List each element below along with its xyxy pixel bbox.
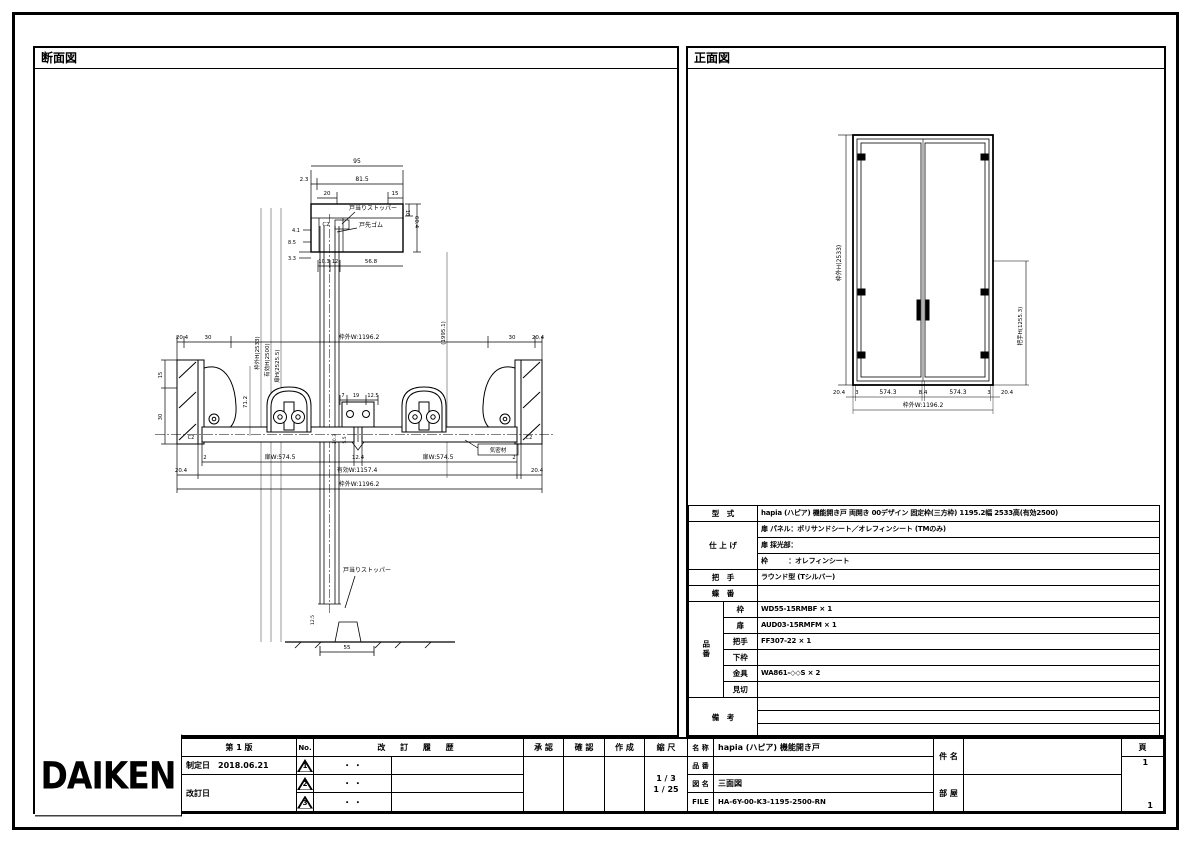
dim-label: 12.5 [310,615,316,625]
dim-label: 10.3 [318,259,329,265]
spec-part-value [758,650,1160,666]
front-view-panel: 正面図 [686,46,1166,737]
revision-desc [392,775,524,793]
dim-label: 20.4 [175,468,188,474]
dim-label: 2.3 [300,177,309,183]
spec-row-finish: 扉 採光部： [689,538,1160,554]
dim-label: 2 [512,455,515,461]
dim-label: 枠外W:1196.2 [903,401,944,409]
spec-part-key: 枠 [723,602,758,618]
dim-label: C2 [322,222,329,228]
daiken-logo: DAIKEN [35,735,182,817]
spec-row-hinge: 蝶 番 [689,586,1160,602]
door-elevation [853,135,993,385]
dim-label: 20.4 [833,390,846,396]
spec-part-key: 把手 [723,634,758,650]
notes-line [758,698,1159,711]
enacted-date-row: 制定日 2018.06.21 [182,757,297,775]
spec-model-value: hapia (ハピア) 機能開き戸 両開き 00デザイン 固定枠(三方枠) 11… [758,506,1160,522]
spec-label: 仕 上 げ [689,522,758,570]
create-cell [605,757,645,812]
spec-handle-value: ラウンド型 (Tシルバー) [758,570,1160,586]
specification-table: 型 式 hapia (ハピア) 機能開き戸 両開き 00デザイン 固定枠(三方枠… [688,505,1160,737]
edition-label: 第 1 版 [182,739,297,757]
pn-value [714,757,934,775]
dim-label: 19 [353,393,359,399]
dim-label: 7 [341,393,344,399]
dim-label: 71.2 [243,396,249,408]
spec-row-finish: 仕 上 げ 扉 パネル：ポリサンドシート／オレフィンシート (TMのみ) [689,522,1160,538]
dim-label: 10 [404,210,410,216]
history-header: 改 訂 履 歴 [314,739,524,757]
room-label: 部 屋 [934,775,964,812]
dim-label: 10.3 [332,434,338,444]
revision-date: ・ ・ [314,757,392,775]
section-view-title: 断面図 [35,48,677,69]
dim-label: 3 [855,390,858,396]
dim-label: 12 [332,259,338,265]
slide-hinge-left [204,367,236,434]
scale-header: 縮 尺 [645,739,688,757]
spec-parts-label: 品番 [689,602,724,698]
approve-cell [524,757,564,812]
spec-notes-value [758,698,1160,737]
room-value [964,775,1122,812]
revision-triangle-3: 3 [297,793,314,812]
spec-label: 型 式 [689,506,758,522]
spec-part-key: 扉 [723,618,758,634]
spec-row-finish: 枠 ：オレフィンシート [689,554,1160,570]
dim-label: 3.3 [288,256,296,262]
enacted-date: 2018.06.21 [218,761,269,770]
front-dimensions [838,135,1029,414]
file-label: FILE [688,793,714,812]
dim-label: 3 [987,390,990,396]
plan-section-bodies [177,360,542,444]
dim-label: 30 [509,335,516,341]
spec-part-value: WD55-15RMBF × 1 [758,602,1160,618]
dim-label: 30 [205,335,212,341]
dim-label: 把手H(1255.3) [1016,307,1024,346]
dim-label: 4.1 [292,228,300,234]
spec-row-model: 型 式 hapia (ハピア) 機能開き戸 両開き 00デザイン 固定枠(三方枠… [689,506,1160,522]
dim-label: 81.5 [355,176,369,183]
dim-label: 95 [353,158,361,165]
spec-finish-line: 扉 パネル：ポリサンドシート／オレフィンシート (TMのみ) [758,522,1160,538]
spec-part-key: 金具 [723,666,758,682]
notes-line [758,711,1159,724]
spec-row-part: 扉AUD03-15RMFM × 1 [689,618,1160,634]
dim-label: (1995.1) [441,321,447,345]
spec-part-key: 下枠 [723,650,758,666]
dim-label: 12.4 [352,455,365,461]
create-header: 作 成 [605,739,645,757]
dim-label: 扉H(2525.5) [273,349,281,382]
dim-label: 2 [203,455,206,461]
notes-line [758,724,1159,736]
dim-label: 扉W:574.5 [423,453,454,461]
revised-label: 改訂日 [182,775,297,812]
dim-label: 56.8 [365,259,378,265]
revision-date: ・ ・ [314,775,392,793]
dim-label: 15 [158,372,164,378]
dim-label: 枠外H(2533) [253,336,261,369]
dim-label: 574.3 [879,389,896,396]
dim-label: 12.5 [367,393,378,399]
pn-label: 品 番 [688,757,714,775]
dim-label: 20 [324,191,331,197]
dim-label: C2 [526,435,533,441]
project-label: 件 名 [934,739,964,775]
scale-values: 1 / 3 1 / 25 [645,757,688,812]
hinge-mark [981,154,988,160]
drawing-value: 三面図 [714,775,934,793]
door-handle-right [926,300,929,320]
section-view-panel: 断面図 [33,46,679,737]
spec-label: 備 考 [689,698,758,737]
dim-label: 55 [344,645,351,651]
file-value: HA-6Y-00-K3-1195-2500-RN [714,793,934,812]
dim-label: 20.4 [531,468,544,474]
dim-label: 8.4 [919,390,928,396]
project-value [964,739,1122,775]
dim-label: 60.4 [413,216,419,229]
dim-label: 気密材 [490,446,507,454]
revision-triangle-2: 2 [297,775,314,793]
dim-label: 5.5 [342,436,348,443]
dim-label: C2 [188,435,195,441]
dim-label: 戸当りストッパー [343,566,391,574]
page-number-bottom: 1 [1147,801,1153,810]
spec-row-part: 品番 枠 WD55-15RMBF × 1 [689,602,1160,618]
front-view-drawing: 枠外H(2533)把手H(1255.3)20.43574.38.4574.332… [688,48,1160,503]
spec-row-handle: 把 手 ラウンド型 (Tシルバー) [689,570,1160,586]
dim-label: 扉W:574.5 [265,453,296,461]
dim-label: 20.4 [1001,390,1014,396]
page-number-top: 1 [1143,758,1149,767]
hinge-mark [858,154,865,160]
dim-label: 20.4 [176,335,189,341]
hinge-mark [858,289,865,295]
spec-row-part: 金具WA861-◇◇S × 2 [689,666,1160,682]
spec-finish-line: 扉 採光部： [758,538,1160,554]
spec-part-value: FF307-22 × 1 [758,634,1160,650]
page-cell: 1 1 [1122,757,1164,812]
enacted-label: 制定日 [186,760,210,771]
spec-part-value: AUD03-15RMFM × 1 [758,618,1160,634]
revision-triangle-1: 1 [297,757,314,775]
drawing-sheet: 断面図 [0,0,1191,842]
dim-label: 枠外H(2533) [835,245,843,281]
spec-label: 把 手 [689,570,758,586]
dim-label: 20.4 [532,335,545,341]
spec-hinge-value [758,586,1160,602]
spec-row-part: 見切 [689,682,1160,698]
spec-part-value [758,682,1160,698]
dim-label: 8.5 [288,240,296,246]
door-handle-left [917,300,920,320]
name-value: hapia (ハピア) 機能開き戸 [714,739,934,757]
name-label: 名 称 [688,739,714,757]
dim-label: 有効W:1157.4 [337,466,378,474]
revision-desc [392,793,524,812]
hinge-mark [981,352,988,358]
dim-label: 枠外W:1196.2 [339,333,380,341]
hinge-mark [858,352,865,358]
hinge-mark [981,289,988,295]
revision-date: ・ ・ [314,793,392,812]
dim-label: 574.3 [949,389,966,396]
section-view-drawing: 952.381.52015C2戸当りストッパー戸先ゴム4.18.53.310.3… [35,48,673,731]
front-view-title: 正面図 [688,48,1164,69]
spec-row-part: 把手FF307-22 × 1 [689,634,1160,650]
spec-finish-line: 枠 ：オレフィンシート [758,554,1160,570]
check-cell [564,757,605,812]
spec-row-notes: 備 考 [689,698,1160,737]
spec-part-value: WA861-◇◇S × 2 [758,666,1160,682]
dim-label: 戸当りストッパー [349,204,397,212]
dim-label: 戸先ゴム [359,221,383,229]
drawing-label: 図 名 [688,775,714,793]
dim-label: 30 [158,414,164,420]
dim-label: 枠外W:1196.2 [339,480,380,488]
spec-row-part: 下枠 [689,650,1160,666]
dim-label: 有効H(2500) [263,343,271,376]
scale-value-2: 1 / 25 [653,784,678,795]
title-block: DAIKEN 第 1 版 制定日 2018.06.21 改訂日 No. 1 2 … [33,737,1166,814]
slide-hinge-right [483,367,515,434]
dim-label: 15 [392,191,399,197]
spec-part-key: 見切 [723,682,758,698]
no-header: No. [297,739,314,757]
approve-header: 承 認 [524,739,564,757]
page-header: 頁 [1122,739,1164,757]
spec-label: 蝶 番 [689,586,758,602]
scale-value-1: 1 / 3 [656,773,676,784]
check-header: 確 認 [564,739,605,757]
revision-desc [392,757,524,775]
